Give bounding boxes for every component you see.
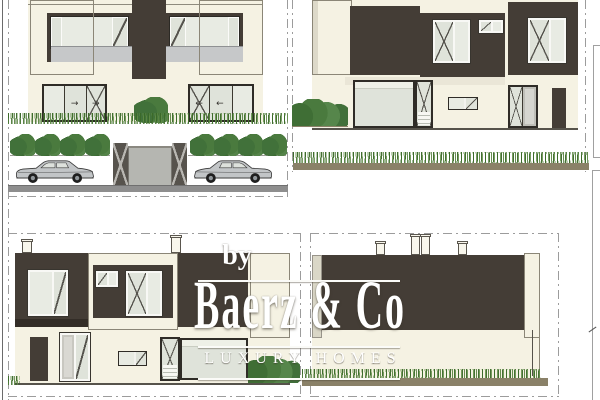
watermark-tagline: LUXURY HOMES [192,350,408,368]
frame-top-line [310,233,559,234]
watermark-prefix: by [192,242,282,270]
chimney-cap [457,241,468,244]
frame-bottom-line [310,396,559,397]
corner-pillar [524,253,540,338]
frame-right-line [558,233,559,396]
watermark-brand: Baerz & Co [192,272,408,340]
brand-watermark: by Baerz & Co LUXURY HOMES [192,238,408,384]
watermark-rule [198,378,400,380]
watermark-rule [198,346,400,348]
chimney-cap [420,234,431,237]
elevation-drawing-sheet: → → ← ← [0,0,600,400]
chimney [458,243,467,255]
chimney [421,236,430,255]
chimney [411,236,420,255]
